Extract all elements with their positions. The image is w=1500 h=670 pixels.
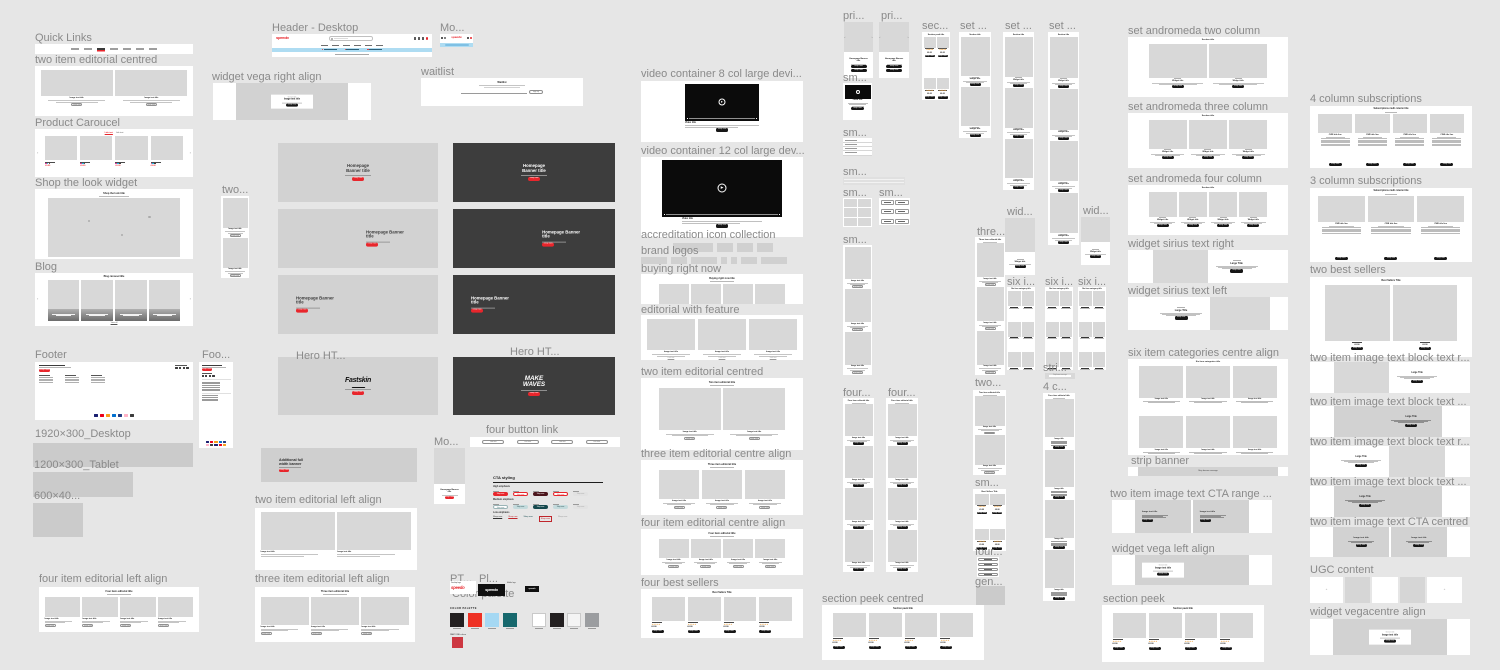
frame-label-set-mobile-3[interactable]: set ... bbox=[1049, 20, 1076, 33]
image-placeholder bbox=[1149, 44, 1207, 78]
item-title: Image text title bbox=[144, 97, 158, 99]
sirius-text-panel: Large TitleShop now bbox=[1208, 250, 1265, 283]
frame-label-set-andromeda-three-column[interactable]: set andromeda three column bbox=[1128, 101, 1268, 114]
frame-two-item-editorial-centred[interactable]: Two item editorial titleImage text title… bbox=[641, 378, 803, 450]
frame-label-shop-the-look[interactable]: Shop the look widget bbox=[35, 177, 137, 190]
frame-label-video-8col[interactable]: video container 8 col large devi... bbox=[641, 68, 802, 81]
frame-label-two-item-image-text-cta-range[interactable]: two item image text CTA range ... bbox=[1110, 488, 1272, 501]
frame-strip-banner[interactable]: Strip banner message bbox=[1128, 467, 1288, 476]
text-line bbox=[123, 48, 131, 49]
item-title: Image text title bbox=[82, 618, 96, 620]
card-title: Homepage Banner title bbox=[439, 489, 461, 494]
frame-editorial-with-feature[interactable]: Image text titleLink textImage text titl… bbox=[641, 315, 803, 360]
itb-text-panel: Large TitleShop now bbox=[1333, 446, 1389, 477]
star-rating: ★★★★★ bbox=[688, 624, 697, 626]
video-controls bbox=[664, 214, 780, 215]
frame-primary-mobile-banner-1[interactable]: ‹›Homepage Banner titleShop nowShop now bbox=[844, 22, 873, 78]
video-player[interactable]: ▶ bbox=[685, 84, 759, 121]
payment-icon bbox=[214, 441, 217, 443]
panel-title: Large Title bbox=[1175, 309, 1188, 312]
panel-title: Large Title bbox=[1359, 496, 1371, 499]
frame-label-quick-links[interactable]: Quick Links bbox=[35, 32, 92, 45]
frame-primary-mobile-banner-2[interactable]: ‹›Homepage Banner titleShop nowShop now bbox=[879, 22, 909, 78]
frame-label-six-item-mobile-2[interactable]: six i... bbox=[1045, 276, 1073, 289]
frame-six-item-mobile-1[interactable]: Six item category title bbox=[1007, 287, 1035, 370]
frame-banner-dark-left[interactable]: Homepage Banner titleShop now bbox=[453, 275, 615, 334]
panel-title: Image text title bbox=[1200, 511, 1215, 514]
frame-label-small-grid[interactable]: sm... bbox=[843, 187, 867, 200]
frame-banner-light-right[interactable]: Homepage Banner titleShop now bbox=[278, 209, 438, 268]
panel-title: Image text title bbox=[1142, 511, 1157, 514]
frame-widget-vegacentre-align[interactable]: Section titleImage text titleShop now bbox=[1310, 619, 1470, 655]
frame-six-item-categories-centre-align[interactable]: Six item categories titleImage text titl… bbox=[1128, 359, 1288, 455]
frame-label-widget-mobile-1[interactable]: wid... bbox=[1007, 206, 1033, 219]
frame-label-two-item-image-text-cta-centred[interactable]: two item image text CTA centred bbox=[1310, 516, 1468, 529]
frame-label-two-item-editorial-left-align[interactable]: two item editorial left align bbox=[255, 494, 382, 507]
frame-set-mobile-1[interactable]: Section titleWidget titleShop nowWidget … bbox=[959, 32, 991, 138]
frame-label-mobile-homepage-banner[interactable]: Mo... bbox=[434, 436, 458, 449]
frame-header-mobile[interactable]: speedo bbox=[440, 34, 473, 47]
cta-cell: Shop now bbox=[553, 491, 568, 496]
frame-hero-dark[interactable]: MAKE WAVESShop now bbox=[453, 357, 615, 415]
item-title: Image text title bbox=[228, 268, 241, 270]
frame-label-two-item-image-text-block-left-panel[interactable]: two item image text block text r... bbox=[1310, 436, 1470, 449]
frame-label-brand-logos[interactable]: brand logos bbox=[641, 245, 699, 258]
button-outline: Link text bbox=[482, 440, 504, 444]
text-line bbox=[361, 630, 389, 631]
frame-label-four-item-editorial-centre-align[interactable]: four item editorial centre align bbox=[641, 517, 785, 530]
frame-label-buying-right-now[interactable]: buying right now bbox=[641, 263, 721, 276]
frame-footer-desktop[interactable]: Shop now bbox=[35, 362, 193, 420]
text-line bbox=[484, 87, 520, 88]
frame-label-ugc-content[interactable]: UGC content bbox=[1310, 564, 1374, 577]
frame-brand-palette[interactable]: PT...Pl...Color paletteDesktop logospeed… bbox=[450, 568, 612, 668]
star-rating: ★★★★★ bbox=[759, 624, 768, 626]
frame-two-item-mobile-side[interactable]: Image text titleShop nowImage text title… bbox=[221, 196, 249, 278]
video-player[interactable]: ▶ bbox=[662, 160, 782, 217]
text-line bbox=[1352, 502, 1378, 503]
frame-two-item-image-text-block-right-panel[interactable]: Large TitleShop now bbox=[1310, 362, 1470, 393]
text-line bbox=[202, 397, 218, 398]
text-line bbox=[120, 622, 140, 623]
frame-four-item-editorial-centre-align[interactable]: Four item editorial titleImage text titl… bbox=[641, 529, 803, 575]
image-placeholder bbox=[1079, 322, 1092, 337]
frame-two-item-editorial-left-align[interactable]: Image text titleImage text title bbox=[255, 508, 417, 570]
cta-cell: Shop now bbox=[533, 504, 548, 509]
end-cap bbox=[1447, 527, 1470, 557]
frame-blog[interactable]: Blog carousel title‹›View all bbox=[35, 273, 193, 326]
end-cap bbox=[1249, 500, 1272, 533]
promo-item bbox=[322, 49, 337, 50]
frame-label-widget-sirius-text-right[interactable]: widget sirius text right bbox=[1128, 238, 1234, 251]
button-black: Shop now bbox=[1405, 424, 1417, 427]
pantone-swatch bbox=[452, 637, 463, 648]
banner-image-wrap: ‹› bbox=[844, 22, 873, 52]
frame-small-best-sellers[interactable]: Best Sellers Title★★★★★£0.00Shop now★★★★… bbox=[973, 489, 1006, 551]
item-title: Image text title bbox=[983, 426, 996, 428]
items-row: Image text titleShop nowImage text title… bbox=[261, 597, 410, 640]
frame-three-item-mobile[interactable]: Three item editorial titleImage text tit… bbox=[975, 237, 1005, 375]
frame-four-item-mobile-2[interactable]: Four item editorial titleImage text titl… bbox=[886, 398, 918, 572]
waitlist-form: Sign up bbox=[461, 90, 543, 94]
frame-two-item-mobile[interactable]: Two item editorial titleImage text title… bbox=[973, 390, 1006, 475]
image-placeholder bbox=[1081, 217, 1110, 242]
frame-hero-light[interactable]: FastskinShop now bbox=[278, 357, 438, 415]
button-black: Shop now bbox=[853, 442, 864, 445]
frame-label-six-item-mobile-3[interactable]: six i... bbox=[1078, 276, 1106, 289]
frame-two-item-editorial-centred-left[interactable]: Image text titleShop nowImage text title… bbox=[35, 66, 193, 116]
items-row: ★★★★★£0.00Shop now★★★★★£0.00Shop now★★★★… bbox=[652, 597, 793, 636]
frame-label-two-item-mobile-side[interactable]: two... bbox=[222, 184, 248, 197]
text-line bbox=[65, 379, 79, 380]
frame-label-two-item-image-text-block-right-panel[interactable]: two item image text block text r... bbox=[1310, 352, 1470, 365]
frame-label-set-andromeda-two-column[interactable]: set andromeda two column bbox=[1128, 25, 1260, 38]
text-line bbox=[845, 148, 857, 149]
frame-product-carousel[interactable]: Link textLink text‹›£0.00£0.00£0.00£0.00 bbox=[35, 129, 193, 177]
frame-four-links[interactable] bbox=[977, 557, 999, 577]
text-line bbox=[898, 202, 905, 203]
frame-label-four-column-subscriptions[interactable]: 4 column subscriptions bbox=[1310, 93, 1422, 106]
frame-label-accreditation-icons[interactable]: accreditation icon collection bbox=[641, 229, 776, 242]
editorial-item: Image text titleShop now bbox=[82, 597, 117, 630]
frame-label-section-peek[interactable]: section peek bbox=[1103, 593, 1165, 606]
frame-label-three-column-subscriptions[interactable]: 3 column subscriptions bbox=[1310, 175, 1422, 188]
image-placeholder bbox=[1325, 285, 1390, 341]
button-outline: Shop now bbox=[985, 371, 996, 374]
frame-two-item-image-text-block-left-panel[interactable]: Large TitleShop now bbox=[1310, 446, 1470, 477]
frame-three-item-editorial-centre-align[interactable]: Three item editorial titleImage text tit… bbox=[641, 460, 803, 515]
frame-ugc-content[interactable]: ++ bbox=[1310, 577, 1463, 603]
frame-banner-dark-centred[interactable]: Homepage Banner titleShop now bbox=[453, 143, 615, 202]
text-line bbox=[1380, 638, 1400, 639]
image-placeholder bbox=[869, 613, 902, 637]
frame-label-four-item-editorial-left-align[interactable]: four item editorial left align bbox=[39, 573, 167, 586]
frame-label-four-column-mobile[interactable]: 4 c... bbox=[1043, 381, 1067, 394]
item-title: Image text title bbox=[683, 431, 697, 433]
button-black: Shop now bbox=[1366, 163, 1379, 166]
button-red: Shop now bbox=[296, 309, 308, 313]
star-rating: ★★★★★ bbox=[1185, 641, 1194, 643]
items-row: CWE title lineShop nowCWE title lineShop… bbox=[1318, 114, 1464, 166]
text-line bbox=[1080, 369, 1090, 370]
chevron-right-icon: › bbox=[190, 297, 191, 302]
frame-label-six-item-categories-centre-align[interactable]: six item categories centre align bbox=[1128, 347, 1279, 360]
frame-banner-dark-right[interactable]: Homepage Banner titleShop now bbox=[453, 209, 615, 268]
editorial-section: Image text titleShop now bbox=[977, 287, 1004, 330]
cta-pill: Shop now bbox=[573, 505, 588, 509]
play-icon: ▶ bbox=[719, 99, 726, 106]
sirius-text-panel: Large TitleShop now bbox=[1152, 297, 1210, 330]
frame-label-hero-dark[interactable]: Hero HT... bbox=[510, 346, 560, 359]
product-price: £0.00 bbox=[833, 642, 838, 644]
frame-widget-sirius-text-left[interactable]: Large TitleShop now bbox=[1128, 297, 1288, 330]
frame-section-peek[interactable]: Section peek title★★★★★£0.00Shop now★★★★… bbox=[1102, 605, 1264, 662]
button-black: Shop now bbox=[992, 512, 1002, 515]
frame-label-header-mobile[interactable]: Mo... bbox=[440, 22, 464, 35]
newsletter-block: Shop now bbox=[39, 365, 71, 372]
design-canvas[interactable]: Image text titleShop nowImage text title… bbox=[0, 0, 1500, 670]
product-price: £0.00 bbox=[979, 509, 984, 511]
frame-label-widget-vegacentre-align[interactable]: widget vegacentre align bbox=[1310, 606, 1426, 619]
image-placeholder bbox=[749, 319, 798, 350]
frame-four-best-sellers[interactable]: Best Sellers Title★★★★★£0.00Shop now★★★★… bbox=[641, 589, 803, 638]
button-black: Shop now bbox=[1015, 265, 1026, 268]
text-line bbox=[1023, 308, 1033, 309]
text-line bbox=[1023, 338, 1033, 339]
frame-small-grid[interactable] bbox=[843, 198, 872, 227]
strip-mid: Strip banner message bbox=[1138, 467, 1278, 476]
frame-banner-600-mobile[interactable] bbox=[33, 503, 83, 537]
text-line bbox=[1428, 226, 1454, 227]
frame-shop-the-look[interactable]: Shop the look title bbox=[35, 189, 193, 259]
frame-label-section-peek-centred[interactable]: section peek centred bbox=[822, 593, 924, 606]
frame-widget-mobile-2[interactable]: Widget titleShop now bbox=[1081, 217, 1110, 265]
item-title: CWE title line bbox=[1403, 134, 1416, 136]
frame-label-six-item-mobile-1[interactable]: six i... bbox=[1007, 276, 1035, 289]
frame-label-generic-box[interactable]: gen... bbox=[975, 576, 1003, 589]
cta-pill: Shop now bbox=[553, 505, 568, 509]
text-line bbox=[983, 242, 997, 243]
spec-list bbox=[1371, 227, 1410, 233]
frame-widget-mobile-1[interactable]: Widget titleShop now bbox=[1005, 218, 1035, 275]
frame-buying-right-now[interactable]: Buying right now title bbox=[641, 274, 803, 304]
frame-widget-vega-left-align[interactable]: Section titleImage text titleShop now bbox=[1112, 555, 1272, 585]
banner-title: Homepage Banner title bbox=[542, 230, 584, 240]
frame-label-three-item-editorial-centre-align[interactable]: three item editorial centre align bbox=[641, 448, 791, 461]
image-placeholder bbox=[1368, 196, 1415, 222]
button-black: Shop now bbox=[1058, 241, 1069, 244]
frame-label-video-12col[interactable]: video container 12 col large dev... bbox=[641, 145, 805, 158]
frame-label-editorial-with-feature[interactable]: editorial with feature bbox=[641, 304, 739, 317]
banner-card: Homepage Banner titleShop nowShop now bbox=[879, 52, 909, 78]
frame-six-item-mobile-3[interactable]: Six item category title bbox=[1078, 287, 1106, 370]
link-list bbox=[1045, 441, 1074, 445]
frame-label-strip-banner[interactable]: strip banner bbox=[1131, 455, 1189, 468]
frame-four-column-subscriptions[interactable]: Subscriptions multi column titleCWE titl… bbox=[1310, 106, 1472, 168]
video-player[interactable]: ▶ bbox=[845, 85, 871, 99]
frame-footer-mobile[interactable]: Shop now bbox=[199, 362, 233, 448]
image-placeholder bbox=[698, 319, 747, 350]
button-black: Shop now bbox=[886, 65, 902, 68]
widget-title: Four item editorial title bbox=[709, 532, 736, 535]
frame-label-set-andromeda-four-column[interactable]: set andromeda four column bbox=[1128, 173, 1262, 186]
frame-widget-sirius-text-right[interactable]: Large TitleShop now bbox=[1128, 250, 1288, 283]
end-cap bbox=[1310, 619, 1333, 655]
frame-label-banner-1200-tablet[interactable]: 1200×300_Tablet bbox=[34, 459, 119, 472]
frame-banner-light-centred[interactable]: Homepage Banner titleShop now bbox=[278, 143, 438, 202]
text-line bbox=[279, 467, 301, 468]
frame-section-peek-centred[interactable]: Section peek title★★★★★£0.00Shop now★★★★… bbox=[822, 605, 984, 660]
text-line bbox=[667, 504, 690, 505]
frame-label-two-item-image-text-block-left[interactable]: two item image text block text ... bbox=[1310, 476, 1467, 489]
end-cap bbox=[1128, 250, 1153, 283]
text-line bbox=[39, 382, 53, 383]
frame-label-small-strip[interactable]: sm... bbox=[843, 166, 867, 179]
frame-label-strip-mobile[interactable]: stri... bbox=[1043, 362, 1067, 375]
waitlist-input[interactable] bbox=[461, 90, 527, 94]
frame-six-item-mobile-2[interactable]: Six item category title bbox=[1045, 287, 1073, 370]
frame-label-widget-vega-right-align[interactable]: widget vega right align bbox=[212, 71, 321, 84]
frame-four-button-link[interactable]: Link textLink textLink textLink text bbox=[470, 437, 620, 447]
frame-widget-vega-right-align[interactable]: Section titleImage text titleShop now bbox=[213, 83, 371, 120]
product-price: £0.00 bbox=[759, 626, 764, 628]
text-line bbox=[1329, 226, 1355, 227]
image-placeholder bbox=[961, 87, 990, 126]
button-black: Shop now bbox=[1053, 546, 1065, 549]
frame-label-widget-mobile-2[interactable]: wid... bbox=[1083, 205, 1109, 218]
frame-banner-light-left[interactable]: Homepage Banner titleShop now bbox=[278, 275, 438, 334]
button-outline bbox=[895, 219, 909, 224]
frame-small-buttons[interactable] bbox=[879, 198, 910, 225]
frame-label-two-item-editorial-centred[interactable]: two item editorial centred bbox=[641, 366, 763, 379]
frame-label-footer-mobile[interactable]: Foo... bbox=[202, 349, 230, 362]
frame-label-blog[interactable]: Blog bbox=[35, 261, 57, 274]
frame-header-desktop[interactable]: speedo bbox=[272, 34, 432, 57]
text-line bbox=[1432, 145, 1461, 146]
frame-section-peek-mobile[interactable]: Section peek title★★★★★£0.00Shop now★★★★… bbox=[922, 32, 950, 100]
frame-two-item-image-text-block-left[interactable]: Large TitleShop now bbox=[1310, 486, 1470, 517]
frame-video-12col[interactable]: ▶Video titleShop now bbox=[641, 157, 803, 237]
color-swatch bbox=[503, 613, 517, 628]
image-placeholder bbox=[844, 208, 857, 216]
frame-two-item-image-text-cta-centred[interactable]: Image text titleShop nowImage text title… bbox=[1310, 527, 1470, 557]
frame-video-8col[interactable]: ▶Video titleShop now bbox=[641, 81, 803, 142]
button-outline bbox=[978, 563, 998, 566]
button-outline: Shop now bbox=[852, 328, 863, 331]
product-item: ★★★★★£0.00Shop now bbox=[937, 78, 949, 98]
frame-label-small-buttons[interactable]: sm... bbox=[879, 187, 903, 200]
frame-label-two-best-sellers[interactable]: two best sellers bbox=[1310, 264, 1386, 277]
frame-label-small-list[interactable]: sm... bbox=[843, 127, 867, 140]
frame-label-primary-mobile-banner-1[interactable]: pri... bbox=[843, 10, 864, 23]
frame-set-mobile-3[interactable]: Section titleWidget titleShop nowWidget … bbox=[1048, 32, 1079, 245]
frame-four-column-mobile[interactable]: Four item editorial titleImage titleShop… bbox=[1043, 393, 1075, 601]
button-outline: Shop now bbox=[230, 234, 241, 237]
frame-label-set-mobile-1[interactable]: set ... bbox=[960, 20, 987, 33]
frame-three-item-editorial-left-align[interactable]: Three item editorial titleImage text tit… bbox=[255, 587, 415, 642]
social-icons-row bbox=[175, 367, 189, 370]
frame-two-best-sellers[interactable]: Best Sellers Title£0.00Shop now£0.00Shop… bbox=[1310, 277, 1472, 357]
frame-label-four-button-link[interactable]: four button link bbox=[486, 424, 558, 437]
frame-label-waitlist[interactable]: waitlist bbox=[421, 66, 454, 79]
frame-label-small-editorial[interactable]: sm... bbox=[843, 234, 867, 247]
payment-rows bbox=[204, 441, 227, 446]
frame-small-editorial[interactable]: Image text titleShop nowImage text title… bbox=[843, 245, 872, 375]
frame-label-widget-vega-left-align[interactable]: widget vega left align bbox=[1112, 543, 1215, 556]
end-cap bbox=[1310, 446, 1333, 477]
product-item: ★★★★★£0.00Shop now bbox=[1149, 613, 1182, 660]
bag-icon bbox=[470, 37, 472, 39]
frame-four-item-editorial-left-align[interactable]: Four item editorial titleImage text titl… bbox=[39, 587, 199, 632]
btn-wrap: Shop now bbox=[1434, 257, 1447, 260]
frame-two-item-image-text-block-right[interactable]: Large TitleShop now bbox=[1310, 406, 1470, 437]
frame-quick-links[interactable] bbox=[35, 44, 193, 54]
end-cap bbox=[1112, 500, 1135, 533]
footer-links bbox=[39, 375, 105, 383]
spec-list bbox=[1432, 138, 1461, 145]
frame-small-list[interactable] bbox=[843, 138, 872, 156]
frame-cta-styling[interactable]: CTA stylingHigh emphasisShop nowShop now… bbox=[493, 476, 603, 554]
chevron-right-icon: › bbox=[190, 151, 191, 156]
frame-label-small-best-sellers[interactable]: sm... bbox=[975, 477, 999, 490]
image-placeholder bbox=[723, 284, 753, 304]
emphasis-label: Low emphasis bbox=[493, 512, 509, 515]
frame-additional-full-width-banner[interactable]: Additional full width bannerShop now bbox=[261, 448, 417, 482]
frame-three-column-subscriptions[interactable]: Subscriptions multi column titleCWE titl… bbox=[1310, 188, 1472, 262]
image-placeholder bbox=[755, 284, 785, 304]
banner-title: Homepage Banner title bbox=[296, 296, 338, 306]
frame-four-item-mobile-1[interactable]: Four item editorial titleImage text titl… bbox=[843, 398, 874, 572]
frame-set-mobile-2[interactable]: Section titleWidget titleShop nowWidget … bbox=[1003, 32, 1034, 190]
frame-waitlist[interactable]: WaitlistSign up bbox=[421, 78, 583, 106]
frame-label-banner-600-mobile[interactable]: 600×40... bbox=[34, 490, 80, 503]
frame-label-hero-light[interactable]: Hero HT... bbox=[296, 350, 346, 363]
text-line bbox=[1408, 542, 1429, 543]
frame-label-two-item-image-text-block-right[interactable]: two item image text block text ... bbox=[1310, 396, 1467, 409]
frame-label-banner-1920-desktop[interactable]: 1920×300_Desktop bbox=[35, 428, 131, 441]
frame-label-widget-sirius-text-left[interactable]: widget sirius text left bbox=[1128, 285, 1227, 298]
cta-row: Shop nowShop nowShop nowShop nowShop now bbox=[493, 504, 588, 509]
frame-label-three-item-editorial-left-align[interactable]: three item editorial left align bbox=[255, 573, 390, 586]
text-line bbox=[345, 389, 371, 390]
product-price: £0.00 bbox=[652, 626, 657, 628]
image-placeholder bbox=[1060, 322, 1073, 337]
image-placeholder bbox=[223, 198, 248, 228]
text-line bbox=[110, 48, 118, 49]
image-placeholder bbox=[1186, 366, 1230, 398]
frame-label-four-best-sellers[interactable]: four best sellers bbox=[641, 577, 719, 590]
text-line bbox=[324, 49, 337, 50]
frame-small-video[interactable]: ▶Video titleShop now bbox=[843, 83, 872, 120]
frame-label-section-peek-mobile[interactable]: sec... bbox=[922, 20, 948, 33]
frame-label-two-item-editorial-centred-left[interactable]: two item editorial centred bbox=[35, 54, 157, 67]
category-item bbox=[1022, 352, 1035, 369]
widget-text: Widget titleShop now bbox=[1081, 242, 1110, 265]
text-line bbox=[1371, 233, 1410, 234]
frame-label-three-item-mobile[interactable]: thre... bbox=[977, 226, 1005, 239]
link-list bbox=[1045, 541, 1074, 545]
frame-label-four-item-mobile-1[interactable]: four... bbox=[843, 387, 871, 400]
frame-label-small-video[interactable]: sm... bbox=[843, 72, 867, 85]
button-black: Shop now bbox=[1242, 156, 1254, 159]
frame-label-product-carousel[interactable]: Product Caroucel bbox=[35, 117, 120, 130]
menu-icon bbox=[441, 37, 443, 39]
payment-icon bbox=[223, 441, 226, 443]
frame-mobile-homepage-banner[interactable]: Homepage Banner titleShop now bbox=[434, 448, 465, 504]
frame-set-andromeda-three-column[interactable]: Section titleWidget titleShop nowWidget … bbox=[1128, 113, 1288, 168]
frame-label-set-mobile-2[interactable]: set ... bbox=[1005, 20, 1032, 33]
frame-label-two-item-mobile[interactable]: two... bbox=[975, 377, 1001, 390]
frame-label-footer-desktop[interactable]: Footer bbox=[35, 349, 67, 362]
frame-label-header-desktop[interactable]: Header - Desktop bbox=[272, 22, 358, 35]
account-icon bbox=[467, 37, 469, 39]
frame-label-primary-mobile-banner-2[interactable]: pri... bbox=[881, 10, 902, 23]
button-black: Shop now bbox=[1187, 224, 1199, 227]
search-input[interactable] bbox=[329, 36, 373, 40]
frame-label-four-links[interactable]: four... bbox=[975, 546, 1003, 559]
frame-set-andromeda-two-column[interactable]: Section titleWidget titleShop nowWidget … bbox=[1128, 37, 1288, 97]
desktop-logo-card: Desktop logospeedo bbox=[450, 581, 476, 594]
widget-title: Best Sellers Title bbox=[1381, 280, 1400, 283]
image-placeholder bbox=[1233, 416, 1277, 448]
item-title: Image text title bbox=[361, 626, 375, 628]
frame-set-andromeda-four-column[interactable]: Section titleWidget titleShop nowWidget … bbox=[1128, 185, 1288, 235]
banner-content: Homepage Banner titleShop now bbox=[296, 296, 338, 313]
mobile-promo-bar bbox=[440, 43, 473, 48]
frame-label-four-item-mobile-2[interactable]: four... bbox=[888, 387, 916, 400]
frame-two-item-image-text-cta-range[interactable]: Image text titleShop nowImage text title… bbox=[1112, 500, 1272, 533]
fullscreen-icon bbox=[756, 118, 757, 119]
